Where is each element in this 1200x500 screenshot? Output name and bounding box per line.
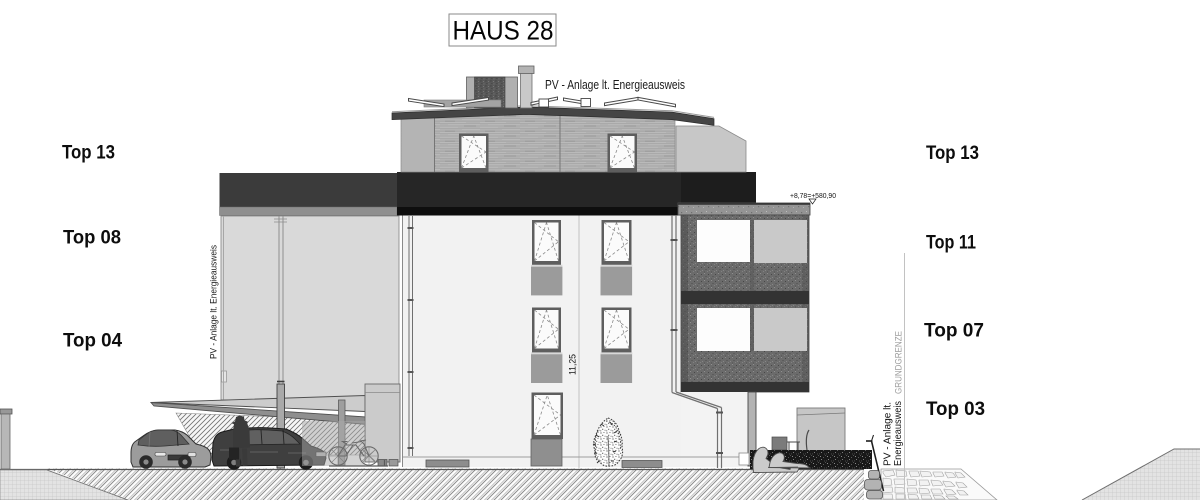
svg-text:Top 13: Top 13 [62,142,115,164]
svg-text:Top 07: Top 07 [924,320,984,342]
svg-text:PV - Anlage lt.: PV - Anlage lt. [883,402,894,466]
svg-text:11,25: 11,25 [568,354,579,375]
svg-text:GRUNDGRENZE: GRUNDGRENZE [894,331,905,394]
svg-text:Top 11: Top 11 [926,232,976,254]
svg-text:HAUS 28: HAUS 28 [453,16,554,46]
svg-text:Top 03: Top 03 [926,398,985,420]
svg-text:Energieausweis: Energieausweis [893,401,904,466]
svg-text:Top 04: Top 04 [63,330,122,352]
svg-text:PV - Anlage lt. Energieausweis: PV - Anlage lt. Energieausweis [545,78,685,92]
svg-text:Top 08: Top 08 [63,227,121,249]
svg-text:PV - Anlage lt. Energieausweis: PV - Anlage lt. Energieausweis [209,245,220,359]
svg-text:Top 13: Top 13 [926,142,979,164]
